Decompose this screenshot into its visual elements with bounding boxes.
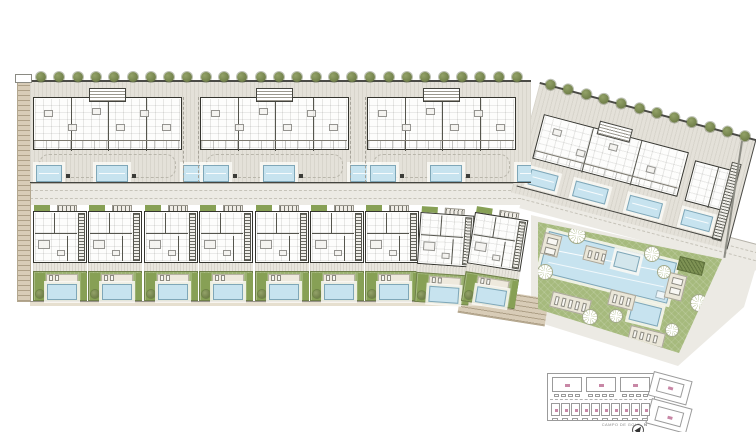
north-label: N: [644, 422, 647, 427]
garden-pool: [475, 286, 507, 306]
key-plan-terrace-tick: [636, 394, 641, 397]
wall-line: [122, 236, 123, 261]
key-plan-label: [575, 409, 578, 412]
lounger-icon: [221, 275, 225, 281]
lounger-icon: [646, 333, 652, 342]
deck-band: [88, 263, 142, 271]
deck-band: [144, 263, 198, 271]
garden-pool: [213, 284, 243, 300]
lounger-icon: [625, 297, 631, 307]
key-plan-house: [641, 403, 650, 416]
tree-icon: [164, 72, 174, 82]
apartment-block: [33, 97, 182, 150]
furniture-mark: [378, 110, 387, 117]
tree-icon: [274, 72, 284, 82]
key-plan-building: [654, 406, 684, 427]
lounger-icon: [652, 335, 658, 344]
bed-mark: [204, 240, 216, 249]
key-plan-garden-tick: [632, 418, 638, 421]
apartment-block: [367, 97, 516, 150]
block-gap-edge: [365, 97, 366, 183]
tree-icon: [311, 72, 321, 82]
table-mark: [389, 250, 397, 256]
key-plan-garden-tick: [602, 418, 608, 421]
lounger-icon: [55, 275, 59, 281]
private-garden: [365, 271, 419, 301]
townhouse-row: [30, 205, 544, 307]
table-mark: [441, 253, 449, 260]
private-pool: [517, 165, 531, 182]
townhouse: [144, 211, 198, 263]
tree-icon: [668, 111, 680, 123]
key-plan-terrace-tick: [568, 394, 573, 397]
pool-fence: [30, 182, 531, 183]
townhouse: [255, 211, 309, 263]
site-plan: CAMPO DE GOLF N: [0, 0, 756, 432]
entrance-gate: [15, 74, 32, 83]
planter-strip: [247, 273, 253, 300]
furniture-mark: [283, 124, 292, 131]
lounger-icon: [632, 330, 638, 339]
private-pool: [36, 165, 62, 182]
furniture-mark: [211, 110, 220, 117]
townhouse-unit: [88, 205, 142, 301]
lounger-icon: [271, 275, 275, 281]
key-plan-label: [599, 384, 604, 387]
key-plan-label: [555, 409, 558, 412]
key-plan-house: [581, 403, 590, 416]
tree-icon: [219, 72, 229, 82]
bed-mark: [38, 240, 50, 249]
key-plan-label: [625, 409, 628, 412]
tree-icon: [201, 72, 211, 82]
key-plan-terrace-tick: [629, 394, 634, 397]
stair-core: [256, 88, 293, 102]
tree-icon: [633, 102, 645, 114]
stair-core: [423, 88, 460, 102]
tree-icon: [402, 72, 412, 82]
furniture-mark: [162, 124, 171, 131]
key-plan-label: [635, 409, 638, 412]
lounger-icon: [671, 277, 683, 286]
key-plan-house: [601, 403, 610, 416]
lounger-icon: [639, 332, 645, 341]
key-plan-label: [565, 409, 568, 412]
tree-row-top: [30, 70, 531, 86]
tree-icon: [329, 72, 339, 82]
wall-line: [257, 233, 299, 234]
key-plan-label: [633, 384, 638, 387]
table-mark: [492, 254, 501, 261]
key-plan-terrace-tick: [588, 394, 593, 397]
lounger-icon: [332, 275, 336, 281]
palm-tree-icon: [568, 226, 586, 244]
perimeter-path: [17, 76, 31, 302]
townhouse-unit: [144, 205, 198, 301]
deck-band: [365, 263, 419, 271]
tree-icon: [562, 83, 574, 95]
wall-line: [312, 233, 354, 234]
pool-gate: [233, 174, 237, 178]
lounger-icon: [554, 296, 560, 306]
private-pool: [203, 165, 229, 182]
key-plan-label: [615, 409, 618, 412]
main-road: [30, 183, 531, 205]
wall-line: [109, 213, 110, 233]
pool-gate: [466, 174, 470, 178]
table-mark: [112, 250, 120, 256]
pool-gate: [299, 174, 303, 178]
key-plan-label: [565, 384, 570, 387]
planter-strip: [81, 273, 87, 300]
key-plan-garden-tick: [572, 418, 578, 421]
wall-line: [220, 213, 221, 233]
tree-icon: [598, 93, 610, 105]
stair-strip: [300, 213, 307, 261]
bed-mark: [93, 240, 105, 249]
tree-icon: [651, 107, 663, 119]
palm-tree-icon: [657, 265, 671, 279]
key-plan-house: [611, 403, 620, 416]
garden-tree-icon: [313, 290, 321, 298]
lounger-icon: [594, 252, 600, 261]
stair-core: [89, 88, 126, 102]
tree-icon: [182, 72, 192, 82]
tree-icon: [365, 72, 375, 82]
garden-pool: [379, 284, 409, 300]
lounger-icon: [110, 275, 114, 281]
balcony-band: [201, 140, 347, 149]
tree-icon: [580, 88, 592, 100]
wall-line: [386, 213, 387, 233]
tree-icon: [457, 72, 467, 82]
lounger-icon: [561, 298, 567, 308]
private-garden: [144, 271, 198, 301]
hedge-patch: [677, 256, 706, 276]
block-gap-edge: [198, 97, 199, 183]
key-plan-blocks: [546, 368, 656, 422]
townhouse: [417, 212, 474, 268]
garden-pool: [47, 284, 77, 300]
key-plan-garden-tick: [642, 418, 648, 421]
key-plan-garden-tick: [622, 418, 628, 421]
furniture-mark: [474, 110, 483, 117]
townhouse: [365, 211, 419, 263]
key-plan-terrace-tick: [602, 394, 607, 397]
lounger-icon: [669, 287, 681, 296]
furniture-mark: [44, 110, 53, 117]
apartment-block: [200, 97, 349, 150]
tree-icon: [494, 72, 504, 82]
furniture-mark: [329, 124, 338, 131]
wall-line: [289, 236, 290, 261]
tree-icon: [109, 72, 119, 82]
key-plan-label: [595, 409, 598, 412]
key-plan-house: [631, 403, 640, 416]
stair-strip: [410, 213, 417, 261]
key-plan-block: [586, 377, 616, 392]
key-plan-garden-tick: [592, 418, 598, 421]
furniture-mark: [140, 110, 149, 117]
north-arrow-needle: [634, 425, 643, 432]
table-mark: [279, 250, 287, 256]
stair-strip: [355, 213, 362, 261]
furniture-mark: [450, 124, 459, 131]
wall-line: [276, 213, 277, 233]
wall-line: [165, 213, 166, 233]
private-pool: [527, 169, 558, 192]
garden-pool: [102, 284, 132, 300]
lounger-icon: [574, 301, 580, 311]
palm-tree-icon: [690, 294, 708, 312]
townhouse: [199, 211, 253, 263]
key-plan-garden-tick: [552, 418, 558, 421]
planter-strip: [303, 273, 309, 300]
garden-tree-icon: [258, 290, 266, 298]
balcony-band: [34, 140, 180, 149]
lounger-icon: [166, 275, 170, 281]
tree-icon: [721, 125, 733, 137]
lounger-icon: [326, 275, 330, 281]
lane-marking: [30, 198, 531, 199]
private-garden: [33, 271, 87, 301]
tree-icon: [292, 72, 302, 82]
bed-mark: [423, 241, 436, 251]
furniture-mark: [426, 108, 435, 115]
townhouse-unit: [255, 205, 309, 301]
bed-mark: [370, 240, 382, 249]
key-plan-block: [552, 377, 582, 392]
private-garden: [199, 271, 253, 301]
deck-band: [33, 263, 87, 271]
key-plan-label: [645, 409, 648, 412]
private-pool: [96, 165, 128, 182]
table-mark: [223, 250, 231, 256]
private-garden: [255, 271, 309, 301]
lounger-icon: [546, 237, 558, 246]
wall-line: [399, 236, 400, 261]
tree-icon: [146, 72, 156, 82]
wall-line: [35, 233, 77, 234]
private-garden: [88, 271, 142, 301]
tree-icon: [475, 72, 485, 82]
pool-gate: [132, 174, 136, 178]
deck-band: [255, 263, 309, 271]
townhouse: [310, 211, 364, 263]
private-garden: [310, 271, 364, 301]
key-plan-terrace-tick: [622, 394, 627, 397]
furniture-mark: [259, 108, 268, 115]
stair-strip: [133, 213, 140, 261]
lounger-icon: [437, 277, 441, 283]
key-plan-label: [605, 409, 608, 412]
balcony-band: [368, 140, 514, 149]
tree-icon: [54, 72, 64, 82]
pool-gate: [400, 174, 404, 178]
tree-icon: [36, 72, 46, 82]
private-pool: [430, 165, 462, 182]
palm-tree-icon: [609, 309, 623, 323]
tree-icon: [420, 72, 430, 82]
garden-tree-icon: [147, 290, 155, 298]
key-plan-garden-tick: [612, 418, 618, 421]
key-plan-terrace-tick: [595, 394, 600, 397]
key-plan-terrace-tick: [643, 394, 648, 397]
bed-mark: [149, 240, 161, 249]
tree-icon: [256, 72, 266, 82]
lounger-icon: [277, 275, 281, 281]
planter-strip: [509, 281, 519, 309]
bed-mark: [474, 241, 487, 252]
table-mark: [334, 250, 342, 256]
lounger-icon: [381, 275, 385, 281]
private-pool: [370, 165, 396, 182]
table-mark: [168, 250, 176, 256]
private-pool: [263, 165, 295, 182]
key-plan-terrace-tick: [561, 394, 566, 397]
townhouse-unit: [33, 205, 87, 301]
table-mark: [57, 250, 65, 256]
deck-band: [199, 263, 253, 271]
lounger-icon: [215, 275, 219, 281]
key-plan-house: [591, 403, 600, 416]
townhouse: [467, 212, 528, 272]
stair-strip: [189, 213, 196, 261]
pool-gate: [66, 174, 70, 178]
bed-mark: [260, 240, 272, 249]
tree-icon: [347, 72, 357, 82]
palm-tree-icon: [582, 309, 598, 325]
tree-icon: [512, 72, 522, 82]
planter-strip: [192, 273, 198, 300]
townhouse-unit: [310, 205, 364, 301]
key-plan: CAMPO DE GOLF N: [546, 368, 696, 432]
key-plan-building: [656, 378, 685, 398]
wall-line: [233, 236, 234, 261]
garden-pool: [324, 284, 354, 300]
planter-strip: [136, 273, 142, 300]
tree-icon: [686, 116, 698, 128]
tree-icon: [384, 72, 394, 82]
lane-line: [548, 262, 664, 288]
palm-tree-icon: [665, 323, 679, 337]
tree-icon: [73, 72, 83, 82]
wall-line: [67, 236, 68, 261]
tree-icon: [237, 72, 247, 82]
deck-band: [310, 263, 364, 271]
key-plan-garden-tick: [582, 418, 588, 421]
stair-strip: [78, 213, 85, 261]
north-arrow-icon: N: [632, 424, 644, 432]
tree-icon: [704, 121, 716, 133]
lounger-icon: [612, 294, 618, 304]
furniture-mark: [235, 124, 244, 131]
lounger-icon: [567, 299, 573, 309]
block-gap-edge: [183, 97, 184, 183]
key-plan-block: [620, 377, 650, 392]
furniture-mark: [68, 124, 77, 131]
palm-tree-icon: [644, 246, 660, 262]
lane-marking: [30, 190, 531, 191]
furniture-mark: [496, 124, 505, 131]
lounger-icon: [104, 275, 108, 281]
lounger-icon: [387, 275, 391, 281]
tree-icon: [439, 72, 449, 82]
townhouse: [33, 211, 87, 263]
wall-line: [344, 236, 345, 261]
bed-mark: [315, 240, 327, 249]
townhouse-unit: [199, 205, 253, 301]
apartment-band: [30, 80, 531, 183]
block-gap-edge: [350, 97, 351, 183]
townhouse-unit: [365, 205, 419, 301]
key-plan-house: [551, 403, 560, 416]
key-plan-label: [667, 416, 673, 420]
tree-icon: [545, 79, 557, 91]
lounger-icon: [544, 247, 556, 256]
stair-strip: [244, 213, 251, 261]
key-plan-house: [621, 403, 630, 416]
key-plan-label: [585, 409, 588, 412]
lounger-icon: [587, 250, 593, 259]
garden-pool: [158, 284, 188, 300]
furniture-mark: [116, 124, 125, 131]
key-plan-terrace-tick: [609, 394, 614, 397]
lounger-icon: [49, 275, 53, 281]
furniture-mark: [402, 124, 411, 131]
garden-pool: [428, 286, 459, 304]
wall-line: [201, 233, 243, 234]
key-plan-garden-tick: [562, 418, 568, 421]
lounger-icon: [619, 296, 625, 306]
townhouse: [88, 211, 142, 263]
garden-pool: [269, 284, 299, 300]
wall-line: [90, 233, 132, 234]
lounger-pad: [627, 325, 666, 348]
key-plan-house: [561, 403, 570, 416]
tree-icon: [615, 97, 627, 109]
wall-line: [367, 233, 409, 234]
wall-line: [178, 236, 179, 261]
tree-icon: [128, 72, 138, 82]
furniture-mark: [92, 108, 101, 115]
key-plan-terrace-tick: [575, 394, 580, 397]
planter-strip: [358, 273, 364, 300]
tree-icon: [91, 72, 101, 82]
furniture-mark: [307, 110, 316, 117]
key-plan-terrace-tick: [554, 394, 559, 397]
lounger-icon: [431, 277, 435, 283]
wall-line: [331, 213, 332, 233]
garden-tree-icon: [36, 290, 44, 298]
lounger-icon: [160, 275, 164, 281]
key-plan-house: [571, 403, 580, 416]
key-plan-label: [668, 386, 674, 390]
wall-line: [146, 233, 188, 234]
wall-line: [54, 213, 55, 233]
